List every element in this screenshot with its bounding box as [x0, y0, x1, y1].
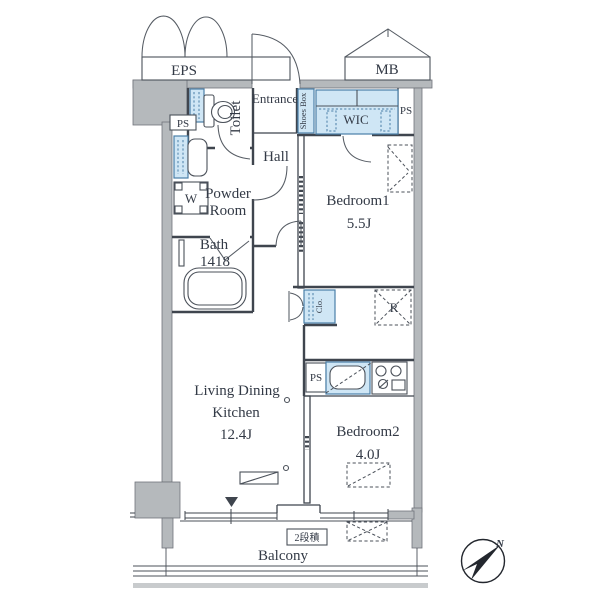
ps-left-label: PS	[177, 118, 189, 130]
kitchen: PS	[306, 362, 407, 394]
stack-note-label: 2段積	[295, 531, 320, 544]
wall-bottom-right-piece	[388, 511, 414, 519]
powder-room-label-2: Room	[210, 203, 247, 219]
bedroom1-label: Bedroom1	[326, 193, 389, 209]
washer-label: W	[185, 191, 198, 206]
eps-label: EPS	[171, 63, 197, 79]
ps-kitchen-label: PS	[310, 372, 322, 384]
ldk-label-2: Kitchen	[212, 405, 260, 421]
ldk-label-1: Living Dining	[194, 383, 280, 399]
bedroom1-size-label: 5.5J	[347, 216, 372, 232]
powder-room-label-1: Powder	[205, 186, 251, 202]
wic-label: WIC	[343, 112, 368, 127]
compass: N	[462, 538, 506, 583]
wall-right	[414, 88, 422, 512]
wall-top-right	[300, 80, 432, 88]
walk-in-closet: WIC PS	[316, 90, 412, 134]
mb-label: MB	[375, 62, 398, 78]
wall-left-balcony	[162, 518, 173, 548]
bedroom2-size-label: 4.0J	[356, 447, 381, 463]
closet-label: Clo.	[314, 299, 324, 313]
kitchen-stove	[372, 362, 407, 394]
floor-plan: EPS MB	[0, 0, 601, 601]
bath-size-label: 1418	[200, 254, 230, 270]
ps-top-right-label: PS	[400, 105, 412, 117]
compass-north-label: N	[495, 538, 505, 550]
balcony-edge-band	[133, 583, 428, 588]
vanity-counter	[174, 136, 188, 178]
bath-label: Bath	[200, 237, 229, 253]
ldk-size-label: 12.4J	[220, 427, 252, 443]
eps-box	[142, 57, 290, 80]
toilet-label: Toilet	[228, 100, 244, 136]
bedroom2-label: Bedroom2	[336, 424, 399, 440]
wall-left	[162, 122, 172, 482]
column-bottom-left	[135, 482, 180, 518]
kitchen-sink	[330, 366, 365, 389]
vanity-basin	[188, 139, 207, 176]
hall-label: Hall	[263, 149, 289, 165]
balcony-label: Balcony	[258, 548, 308, 564]
bath-counter	[179, 240, 184, 266]
entrance-label: Entrance	[252, 91, 298, 106]
fridge-label: R	[390, 300, 399, 315]
shoes-box-label: Shoes Box	[298, 92, 308, 129]
